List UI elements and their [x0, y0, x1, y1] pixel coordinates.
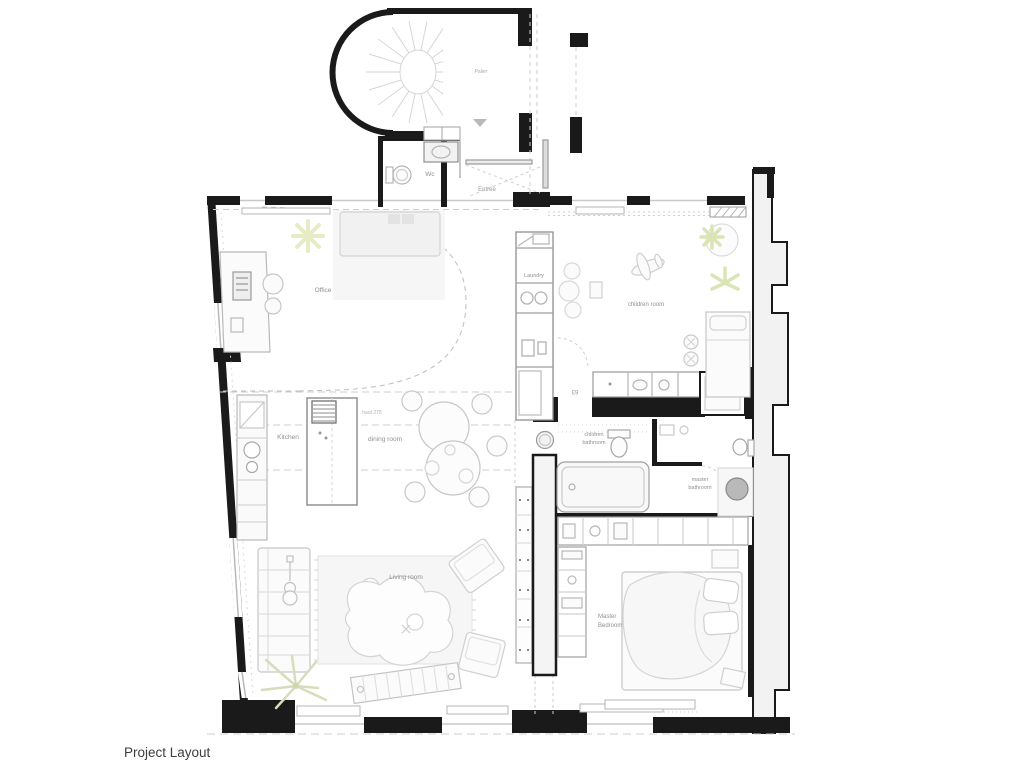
children-desk	[590, 282, 602, 298]
label-dining-room: dining room	[368, 436, 402, 443]
stair-direction-arrow	[473, 119, 487, 127]
wc-toilet	[393, 166, 411, 184]
office-monitor	[233, 272, 251, 300]
floor-plan-page: Palier Wc Entrée Office Laundry children…	[0, 0, 1024, 768]
entry-door-leaf	[466, 160, 532, 164]
washing-machine	[521, 292, 533, 304]
entry-pivot-door	[543, 140, 548, 188]
toilet	[733, 439, 747, 455]
wc-sink-unit	[424, 142, 458, 162]
label-door-width: 63	[571, 388, 578, 394]
pillow	[703, 578, 740, 605]
office-drawer	[231, 318, 243, 332]
label-office: Office	[315, 287, 332, 294]
drawing-caption: Project Layout	[124, 745, 210, 760]
corridor-shelf-strip	[516, 487, 532, 663]
kitchen-fixtures	[237, 395, 357, 540]
radiator-hatched	[710, 207, 746, 217]
kitchen-sink	[244, 442, 260, 458]
dining-chair	[469, 487, 489, 507]
corridor-divider-wall	[533, 455, 556, 675]
stair-treads	[366, 21, 470, 123]
island-hatch-block	[312, 401, 336, 423]
pillow	[703, 611, 738, 635]
dining-chair	[472, 394, 492, 414]
round-sink	[726, 478, 748, 500]
label-master-bedroom-1: Master	[598, 614, 616, 620]
office-furniture	[220, 210, 445, 352]
label-master-bedroom-2: Bedroom	[598, 623, 622, 629]
nightstand	[712, 550, 738, 568]
label-master-bathroom-2: bathroom	[688, 485, 712, 491]
toy	[559, 281, 579, 301]
label-palier: Palier	[475, 69, 488, 75]
label-wc: Wc	[425, 171, 435, 178]
master-bedroom-furniture	[558, 517, 748, 690]
label-master-bathroom-1: master	[692, 477, 709, 483]
office-side-table	[265, 298, 281, 314]
bathtub	[557, 462, 649, 512]
dining-chair	[405, 482, 425, 502]
label-laundry: Laundry	[524, 273, 544, 279]
airplane-rug	[627, 246, 669, 284]
office-chair	[263, 274, 283, 294]
toy	[565, 302, 581, 318]
dryer	[535, 292, 547, 304]
floor-plan-drawing: Palier Wc Entrée Office Laundry children…	[0, 0, 1024, 768]
party-wall-right	[753, 170, 789, 733]
label-living-room: Living room	[389, 574, 423, 581]
label-kitchen: Kitchen	[277, 434, 299, 441]
sofa	[258, 548, 310, 672]
bench	[351, 663, 462, 704]
toy	[564, 263, 580, 279]
label-children-bathroom-1: children	[584, 432, 603, 438]
wc-cistern	[386, 167, 393, 183]
children-room-furniture	[559, 224, 750, 415]
bedroom-closet-row	[558, 517, 748, 545]
label-children-bathroom-2: bathroom	[582, 440, 606, 446]
children-pillow	[710, 316, 746, 330]
dining-set	[402, 391, 507, 507]
office-plant	[293, 221, 323, 251]
label-children-room: children room	[628, 302, 664, 308]
spiral-staircase	[330, 9, 471, 136]
dining-chair	[402, 391, 422, 411]
label-entree: Entrée	[478, 187, 496, 193]
label-ceiling-height: haut 275	[362, 410, 382, 416]
toilet	[611, 437, 627, 457]
dining-chair	[487, 436, 507, 456]
toilet-cistern	[748, 440, 754, 456]
master-bathroom-fixtures	[660, 425, 754, 516]
office-desk	[220, 252, 270, 352]
rug-motif	[407, 614, 423, 630]
